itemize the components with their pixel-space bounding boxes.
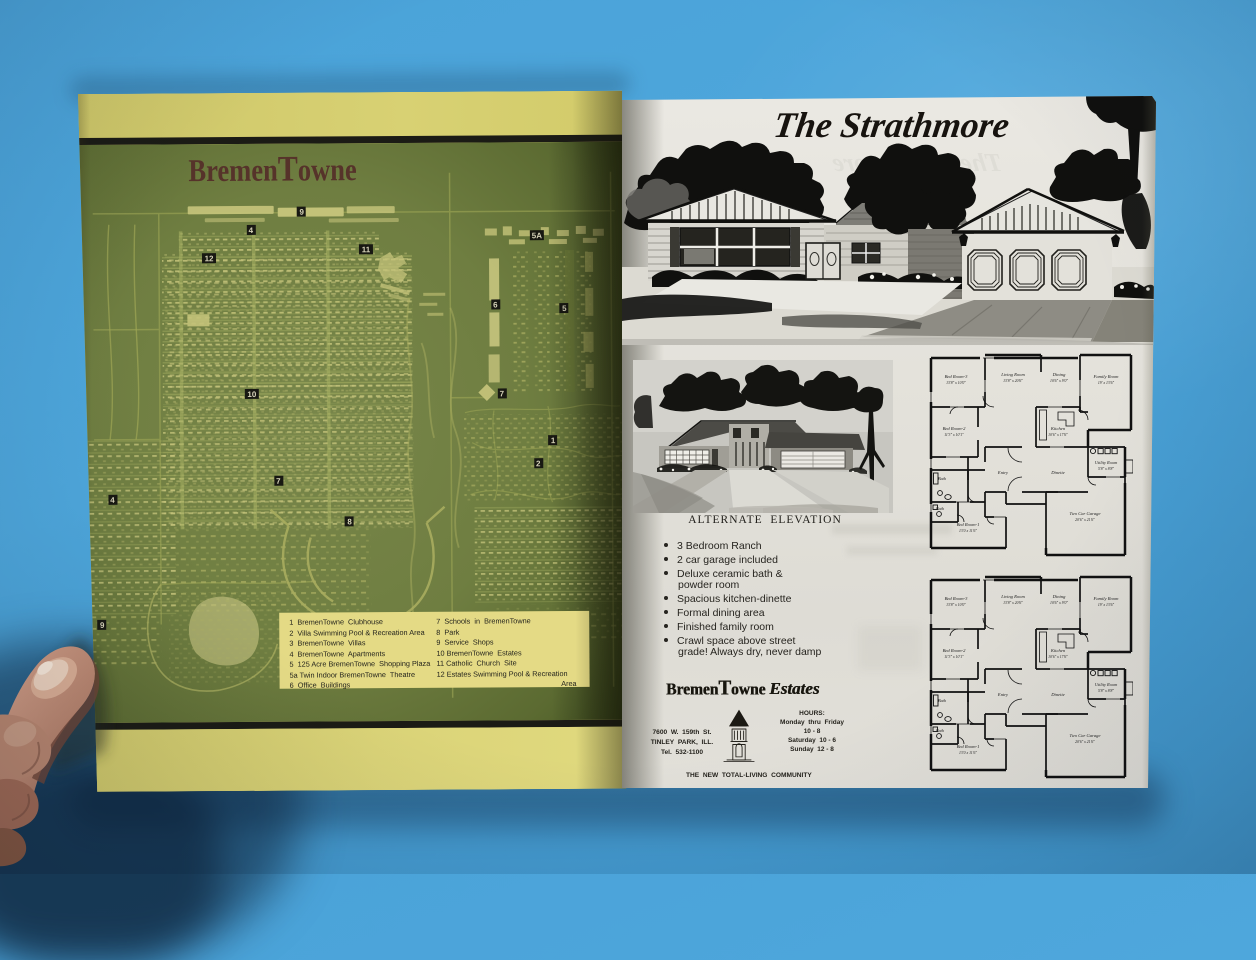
svg-text:11'3" x 10'1": 11'3" x 10'1"	[944, 433, 964, 437]
svg-text:Bath: Bath	[936, 728, 944, 733]
svg-text:10'6" x 9'0": 10'6" x 9'0"	[1050, 601, 1068, 605]
svg-text:13'8" x 10'0": 13'8" x 10'0"	[946, 381, 966, 385]
svg-text:Entry: Entry	[997, 470, 1009, 475]
svg-text:Utility Room: Utility Room	[1095, 682, 1118, 687]
svg-text:9: 9	[299, 208, 304, 217]
svg-text:7: 7	[276, 477, 281, 486]
svg-text:19' x 13'6": 19' x 13'6"	[1098, 603, 1115, 607]
svg-text:Living Room: Living Room	[1000, 372, 1025, 377]
svg-text:Two Car Garage: Two Car Garage	[1069, 511, 1100, 516]
svg-text:20'6" x 21'6": 20'6" x 21'6"	[1075, 518, 1095, 522]
svg-text:13'8" x 20'6": 13'8" x 20'6"	[1003, 601, 1023, 605]
svg-text:Dinette: Dinette	[1050, 470, 1065, 475]
svg-text:Two Car Garage: Two Car Garage	[1069, 733, 1100, 738]
svg-text:6: 6	[493, 300, 498, 309]
svg-text:20'6" x 21'6": 20'6" x 21'6"	[1075, 740, 1095, 744]
svg-text:10'6" x 17'6": 10'6" x 17'6"	[1048, 433, 1068, 437]
svg-text:Bed Room-1: Bed Room-1	[957, 744, 980, 749]
svg-text:Dinette: Dinette	[1050, 692, 1065, 697]
svg-text:Kitchen: Kitchen	[1050, 426, 1066, 431]
svg-text:19' x 13'6": 19' x 13'6"	[1098, 381, 1115, 385]
svg-text:13'8" x 20'6": 13'8" x 20'6"	[1003, 379, 1023, 383]
svg-text:Dining: Dining	[1052, 594, 1066, 599]
svg-text:11'3" x 10'1": 11'3" x 10'1"	[944, 655, 964, 659]
svg-text:7: 7	[500, 389, 505, 398]
svg-text:Family Room: Family Room	[1093, 596, 1120, 601]
svg-text:5'8" x 8'8": 5'8" x 8'8"	[1098, 689, 1114, 693]
svg-text:5'8" x 8'8": 5'8" x 8'8"	[1098, 467, 1114, 471]
svg-text:Bath: Bath	[938, 476, 946, 481]
svg-text:Bed Room-1: Bed Room-1	[957, 522, 980, 527]
svg-text:Bath: Bath	[938, 698, 946, 703]
svg-text:Kitchen: Kitchen	[1050, 648, 1066, 653]
svg-text:10'6" x 17'6": 10'6" x 17'6"	[1048, 655, 1068, 659]
svg-text:2: 2	[536, 459, 541, 468]
svg-text:11: 11	[362, 245, 371, 254]
svg-text:Family Room: Family Room	[1093, 374, 1120, 379]
svg-text:Living Room: Living Room	[1000, 594, 1025, 599]
svg-text:Bed Room-3: Bed Room-3	[945, 596, 969, 601]
svg-text:13'8" x 10'0": 13'8" x 10'0"	[946, 603, 966, 607]
svg-text:Bed Room-2: Bed Room-2	[943, 648, 967, 653]
svg-text:Utility Room: Utility Room	[1095, 460, 1118, 465]
svg-text:13'0 x 11'6": 13'0 x 11'6"	[959, 529, 977, 533]
svg-text:Dining: Dining	[1052, 372, 1066, 377]
svg-text:10: 10	[247, 390, 257, 399]
svg-text:Bed Room-3: Bed Room-3	[945, 374, 969, 379]
svg-text:8: 8	[347, 517, 352, 526]
svg-text:Bed Room-2: Bed Room-2	[943, 426, 967, 431]
svg-text:4: 4	[249, 226, 254, 235]
svg-text:10'6" x 9'0": 10'6" x 9'0"	[1050, 379, 1068, 383]
svg-text:4: 4	[110, 496, 115, 505]
svg-text:12: 12	[205, 254, 215, 263]
svg-text:Bath: Bath	[936, 506, 944, 511]
svg-text:5A: 5A	[532, 231, 543, 240]
svg-text:Entry: Entry	[997, 692, 1009, 697]
svg-text:13'0 x 11'6": 13'0 x 11'6"	[959, 751, 977, 755]
